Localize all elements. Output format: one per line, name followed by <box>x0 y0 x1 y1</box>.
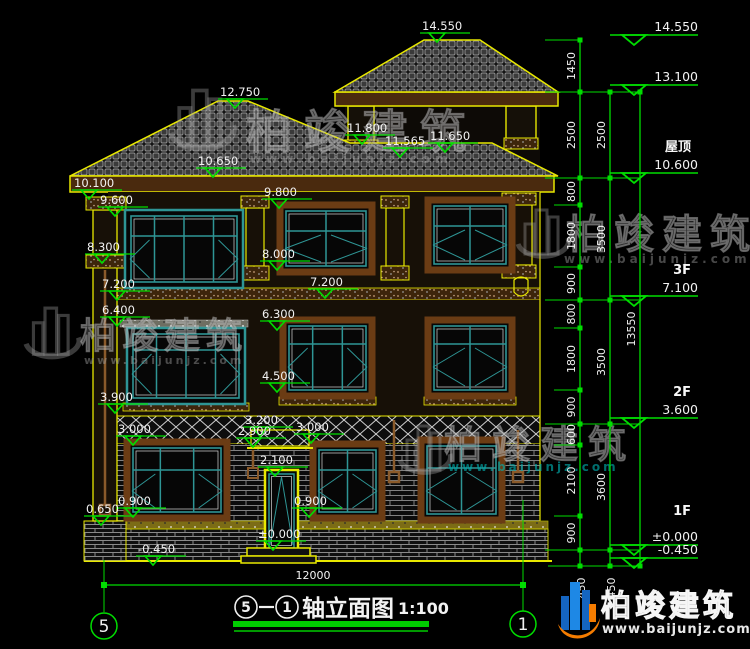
elevation-marker: 14.550 <box>420 19 470 42</box>
footer-logo: 柏竣建筑 www.baijunjz.com <box>558 582 750 638</box>
elevation-label: 10.100 <box>74 176 114 190</box>
elevation-label: 7.200 <box>310 275 343 289</box>
floor-level-marker: 14.550 <box>610 19 698 45</box>
drawing-scale: 1:100 <box>398 599 449 618</box>
window <box>428 320 512 396</box>
left-corbel-8300 <box>86 255 126 268</box>
elevation-label: 3.000 <box>296 420 329 434</box>
watermark-text: 柏竣建筑 <box>80 316 248 357</box>
mid-right-capital <box>381 196 409 208</box>
watermark-url: www.baijunjz.com <box>564 252 750 266</box>
elevation-label: 8.300 <box>87 240 120 254</box>
window <box>125 210 243 288</box>
dimension-chain: 1450250080018009008001800900600210090045… <box>554 38 588 599</box>
overall-dimension: 12000 <box>101 569 526 588</box>
floor-elevation-value: 10.600 <box>654 157 698 172</box>
step-1 <box>247 548 310 556</box>
title-axis-from: 5 <box>241 600 251 616</box>
footer-url: www.baijunjz.com <box>602 622 750 637</box>
elevation-label: 11.565 <box>385 134 425 148</box>
drawing-title: 轴立面图 <box>302 595 394 622</box>
dim-label: 3500 <box>595 225 608 253</box>
cad-canvas: 柏竣建筑 www.baijunjz.com 柏竣建筑 www.baijunjz.… <box>0 0 750 649</box>
elevation-label: 11.650 <box>430 129 470 143</box>
elevation-label: 3.000 <box>118 422 151 436</box>
dim-label: 2500 <box>565 121 578 149</box>
window <box>428 200 512 270</box>
footer-brand: 柏竣建筑 <box>601 589 737 624</box>
footer-logo-icon <box>558 582 600 638</box>
attic-column-base-right <box>504 138 538 149</box>
elevation-label: 0.650 <box>86 502 119 516</box>
floor-elevation-value: 14.550 <box>654 19 698 34</box>
axis-bubble-5-label: 5 <box>99 617 110 637</box>
left-pier-base <box>84 521 126 561</box>
dim-label: 900 <box>565 273 578 294</box>
overall-dim-label: 12000 <box>296 569 331 582</box>
elevation-label: 0.900 <box>294 494 327 508</box>
elevation-label: 10.650 <box>198 154 238 168</box>
floor-name: 2F <box>673 385 691 400</box>
title-block: 5 1 轴立面图 1:100 <box>233 595 449 631</box>
upper-hip-roof <box>335 40 558 92</box>
dimension-chain: 2500350035003600450 <box>584 90 618 599</box>
dim-label: 600 <box>565 424 578 445</box>
dim-label: 1800 <box>565 345 578 373</box>
dim-tick <box>101 582 107 588</box>
elevation-label: 9.800 <box>264 185 297 199</box>
dim-label: 800 <box>565 181 578 202</box>
elevation-label: 9.600 <box>100 193 133 207</box>
watermark-url: www.baijunjz.com <box>84 354 244 367</box>
elevation-label: 8.000 <box>262 247 295 261</box>
floor-level-marker: 10.600屋顶 <box>610 140 698 183</box>
dim-label: 1450 <box>565 52 578 80</box>
elevation-label: 4.500 <box>262 369 295 383</box>
floor-name: 1F <box>673 504 691 519</box>
dim-label: 3600 <box>595 473 608 501</box>
floor-level-marker: 13.100 <box>610 69 698 95</box>
elevation-label: 2.900 <box>238 424 271 438</box>
elevation-label: 12.750 <box>220 85 260 99</box>
elevation-label: 0.900 <box>118 494 151 508</box>
upper-roof-fascia <box>335 92 558 106</box>
elevation-label: 11.800 <box>347 121 387 135</box>
dimension-chain: 13550 <box>614 90 643 569</box>
window <box>283 320 372 396</box>
elevation-label: 3.900 <box>100 390 133 404</box>
floor-elevation-value: 7.100 <box>662 280 698 295</box>
window <box>280 205 372 272</box>
elevation-label: 14.550 <box>422 19 462 33</box>
title-underline-thick <box>233 621 429 627</box>
mid-left-corbel <box>241 266 269 280</box>
floor-elevation-value: 3.600 <box>662 402 698 417</box>
floor-level-marker: 3.6002F <box>610 385 698 428</box>
title-axis-to: 1 <box>282 600 292 616</box>
dim-label: 900 <box>565 397 578 418</box>
dim-label: 900 <box>565 523 578 544</box>
dim-label: 800 <box>565 304 578 325</box>
mid-right-pilaster <box>386 208 404 266</box>
dim-label: 13550 <box>625 312 638 347</box>
entrance-steps <box>241 548 316 563</box>
dim-tick <box>520 582 526 588</box>
mid-right-corbel <box>381 266 409 280</box>
watermark-url: www.baijunjz.com <box>250 152 453 166</box>
axis-bubble-1-label: 1 <box>518 615 529 635</box>
dim-label: 2100 <box>565 467 578 495</box>
elevation-label: -0.450 <box>138 542 175 556</box>
floor-name: 屋顶 <box>665 140 691 155</box>
elevation-label: ±0.000 <box>258 527 301 541</box>
elevation-label: 6.300 <box>262 307 295 321</box>
main-roof-fascia <box>70 176 554 192</box>
dim-label: 3500 <box>595 348 608 376</box>
elevation-label: 2.100 <box>260 453 293 467</box>
elevation-label: 7.200 <box>102 277 135 291</box>
floor-elevation-value: -0.450 <box>658 542 698 557</box>
dim-label: 2500 <box>595 121 608 149</box>
watermark-logo <box>26 308 79 357</box>
floor-name: 3F <box>673 263 691 278</box>
dim-label: 1800 <box>565 222 578 250</box>
floor-elevation-value: 13.100 <box>654 69 698 84</box>
elevation-label: 6.400 <box>102 303 135 317</box>
elevation-drawing: 柏竣建筑 www.baijunjz.com 柏竣建筑 www.baijunjz.… <box>0 0 750 649</box>
watermark-url: www.baijunjz.com <box>448 460 619 474</box>
step-2 <box>241 556 316 563</box>
